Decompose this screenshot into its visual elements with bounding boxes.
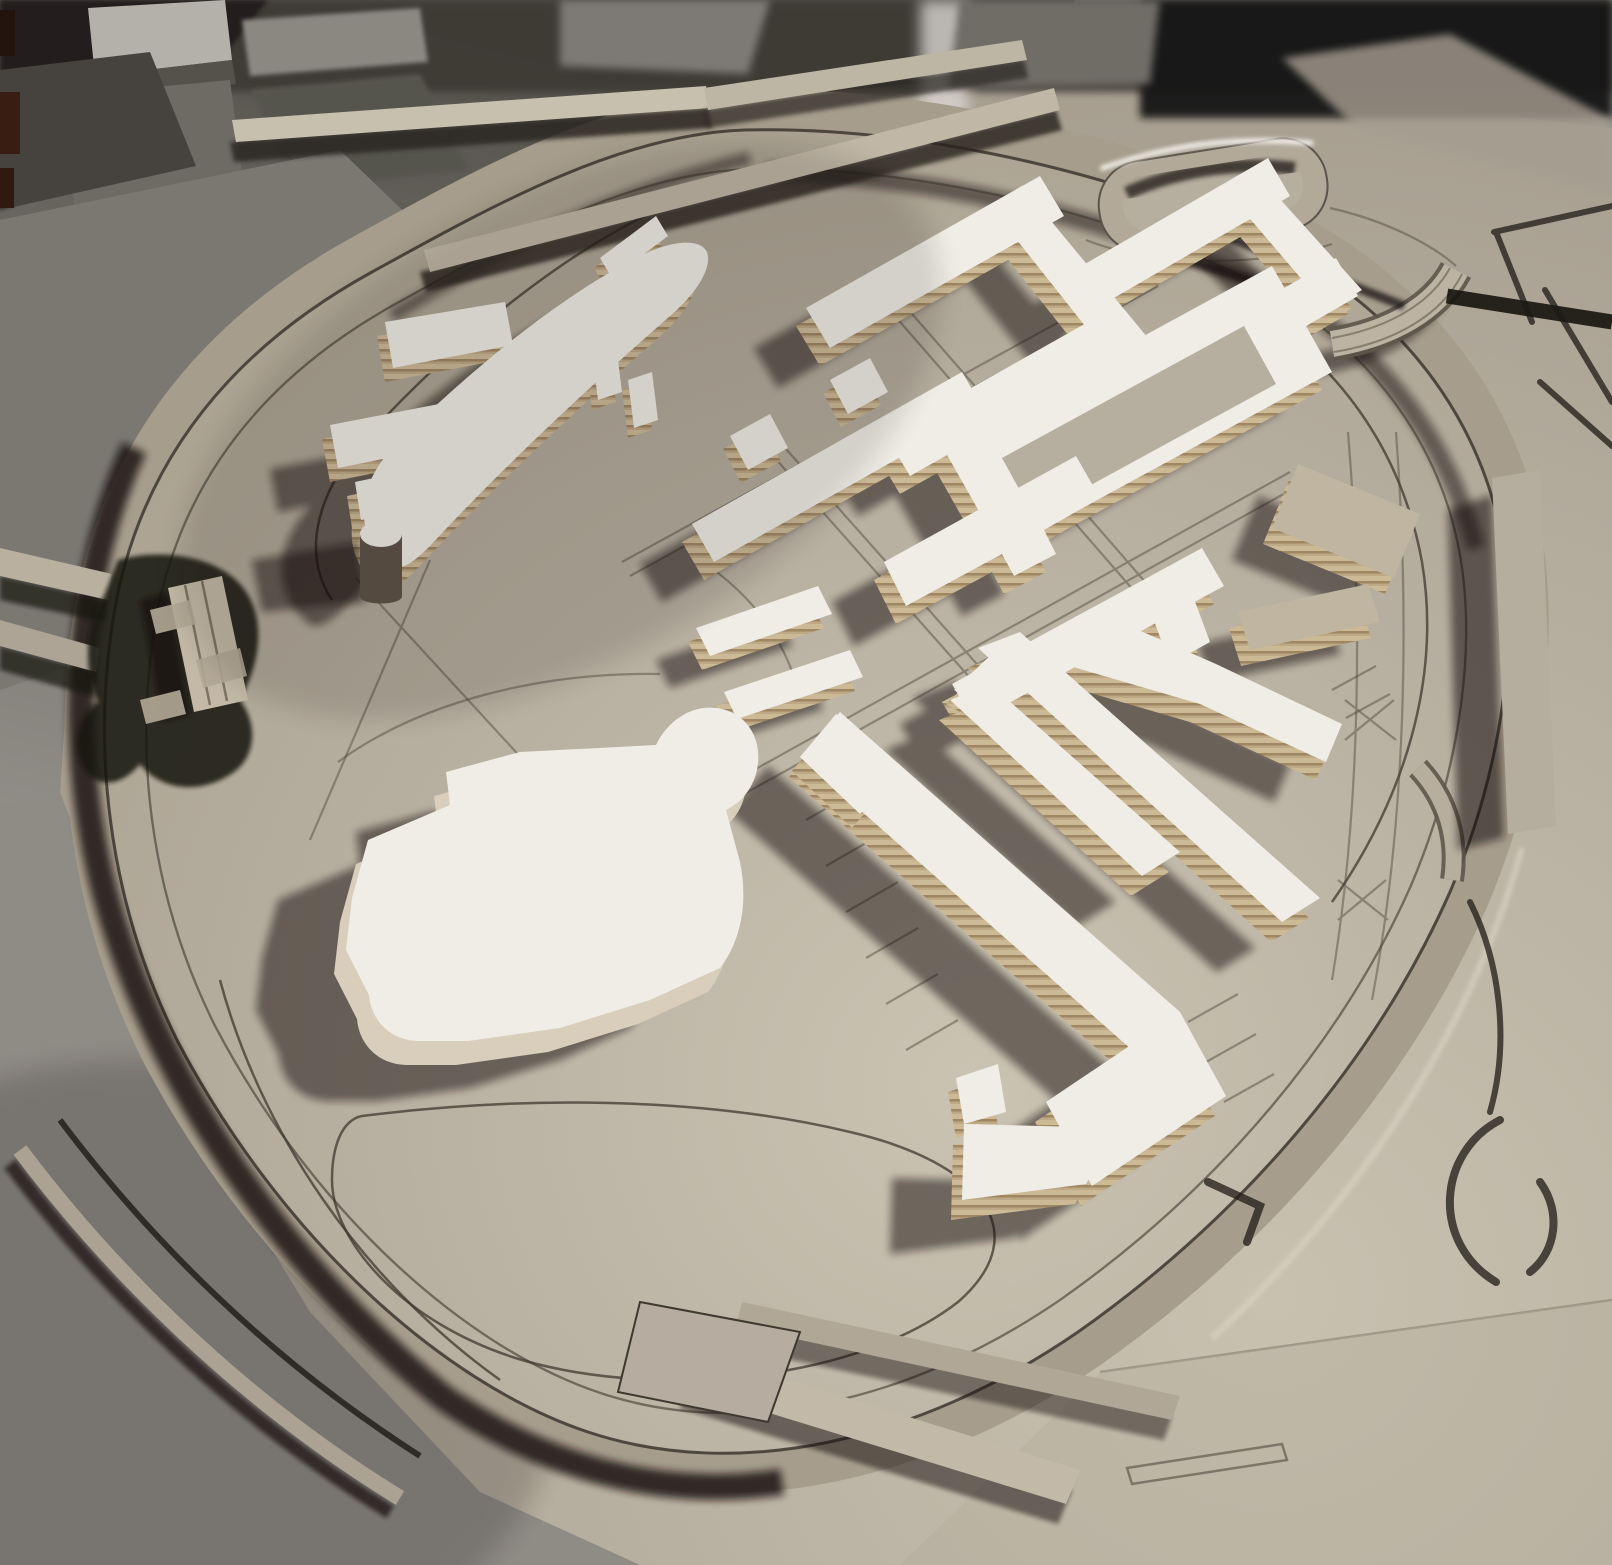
model-photo: [0, 0, 1612, 1565]
model-photo-svg: [0, 0, 1612, 1565]
red-mark: [0, 92, 20, 154]
